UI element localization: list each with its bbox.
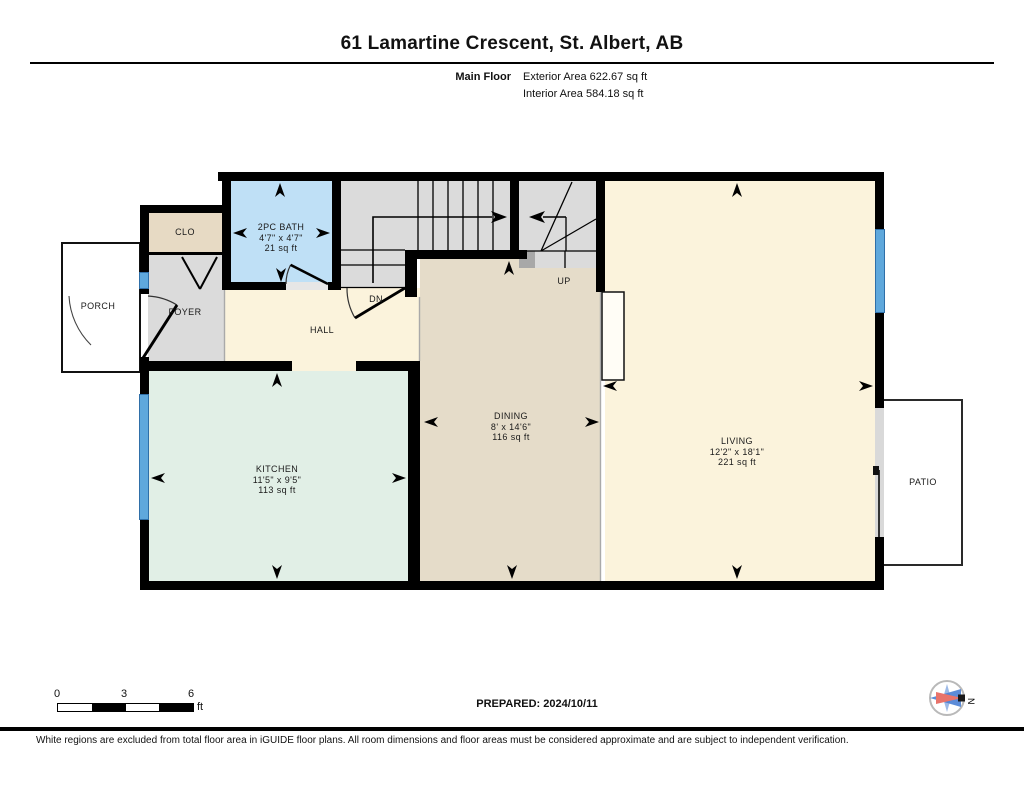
dining-name: DINING [451, 411, 571, 422]
wall-closet-top [140, 205, 222, 213]
kitchen-label: KITCHEN 11'5" x 9'5" 113 sq ft [217, 464, 337, 496]
wall-right-b [875, 313, 884, 408]
wall-bath-bottom-left [222, 282, 286, 290]
living-area: 221 sq ft [677, 457, 797, 468]
header-divider [30, 62, 994, 64]
dining-label: DINING 8' x 14'6" 116 sq ft [451, 411, 571, 443]
living-name: LIVING [677, 436, 797, 447]
stairs-down-landing-fill [341, 250, 405, 288]
window-foyer [139, 272, 149, 289]
closet-label: CLO [163, 227, 207, 238]
bath-dims: 4'7" x 4'7" [231, 233, 331, 244]
scale-seg [92, 704, 126, 711]
living-dims: 12'2" x 18'1" [677, 447, 797, 458]
wall-closet-divider [148, 252, 222, 255]
foyer-label: FOYER [157, 307, 213, 318]
scale-seg [159, 704, 193, 711]
scale-unit: ft [197, 701, 203, 713]
stairs-down-label: DN [356, 294, 396, 305]
wall-bath-bottom-right [328, 282, 341, 290]
living-label: LIVING 12'2" x 18'1" 221 sq ft [677, 436, 797, 468]
patio-door-panel [878, 470, 880, 537]
footer-divider [0, 727, 1024, 731]
wall-stair-divider [510, 172, 519, 251]
floor-label: Main Floor [380, 71, 511, 83]
wall-living-left [596, 172, 605, 292]
bath-name: 2PC BATH [231, 222, 331, 233]
prepared-date: PREPARED: 2024/10/11 [412, 698, 662, 710]
wall-top [218, 172, 884, 181]
wall-bath-right [332, 172, 341, 290]
bath-area: 21 sq ft [231, 243, 331, 254]
scale-tick-6: 6 [184, 688, 198, 700]
kitchen-area: 113 sq ft [217, 485, 337, 496]
wall-bottom [140, 581, 884, 590]
scale-seg [58, 704, 92, 711]
wall-right-c [875, 537, 884, 590]
wall-corner-chunk [405, 250, 417, 297]
patio-label: PATIO [893, 477, 953, 488]
page-title: 61 Lamartine Crescent, St. Albert, AB [0, 33, 1024, 55]
scale-seg [126, 704, 160, 711]
hall-label: HALL [292, 325, 352, 336]
scale-tick-3: 3 [117, 688, 131, 700]
window-kitchen [139, 394, 149, 520]
compass-icon: N [930, 681, 976, 715]
bath-label: 2PC BATH 4'7" x 4'7" 21 sq ft [231, 222, 331, 254]
interior-area: Interior Area 584.18 sq ft [523, 88, 643, 100]
footer-disclaimer: White regions are excluded from total fl… [36, 735, 996, 746]
kitchen-dims: 11'5" x 9'5" [217, 475, 337, 486]
dining-dims: 8' x 14'6" [451, 422, 571, 433]
wall-left-a [140, 205, 149, 272]
stairs-up-label: UP [544, 276, 584, 287]
patio-door-stile [873, 466, 879, 475]
window-living [875, 229, 885, 313]
wall-right-a [875, 172, 884, 229]
floorplan-page: 61 Lamartine Crescent, St. Albert, AB Ma… [0, 0, 1024, 791]
compass-north-label: N [966, 698, 976, 705]
bath-door-threshold [286, 282, 328, 290]
exterior-area: Exterior Area 622.67 sq ft [523, 71, 647, 83]
living-room-fill [605, 181, 875, 581]
wall-left-b [140, 289, 149, 294]
wall-kitchen-right [408, 361, 420, 590]
stairs-down-fill [341, 181, 510, 250]
kitchen-name: KITCHEN [217, 464, 337, 475]
wall-dining-top [417, 250, 527, 259]
porch-label: PORCH [68, 301, 128, 312]
scale-bar [57, 703, 194, 712]
wall-kitchen-top-left [140, 361, 292, 371]
dining-area: 116 sq ft [451, 432, 571, 443]
wall-bath-left [222, 172, 231, 290]
scale-tick-0: 0 [50, 688, 64, 700]
wall-left-d [140, 520, 149, 590]
